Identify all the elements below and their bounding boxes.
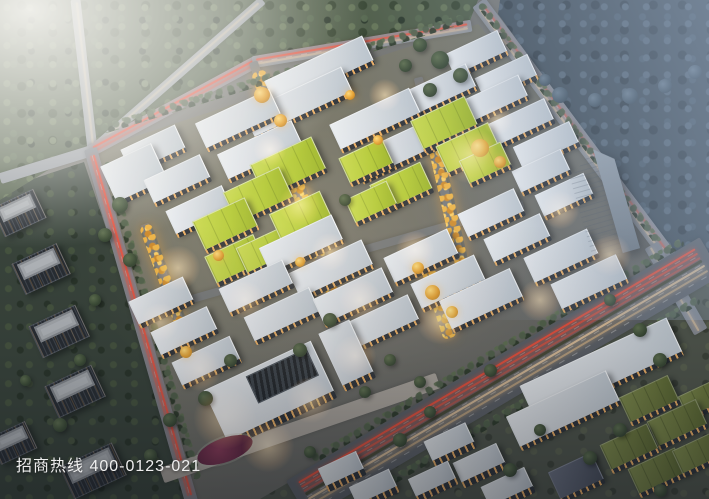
green-tree: [413, 38, 427, 52]
green-tree: [393, 433, 407, 447]
green-tree: [653, 353, 667, 367]
streetlight-glow: [541, 191, 579, 229]
green-tree: [453, 68, 468, 83]
green-tree: [583, 451, 597, 465]
streetlight-glow: [339, 279, 381, 321]
green-tree: [123, 253, 137, 267]
green-tree: [224, 354, 237, 367]
streetlight-glow: [334, 335, 376, 377]
streetlight-glow: [369, 79, 401, 111]
blue-tree: [552, 87, 568, 103]
blue-tree: [622, 88, 638, 104]
green-tree: [112, 197, 128, 213]
green-tree: [431, 51, 449, 69]
green-tree: [384, 354, 396, 366]
green-tree: [89, 294, 101, 306]
streetlight-glow: [287, 377, 333, 423]
green-tree: [534, 424, 546, 436]
gold-tree: [274, 114, 287, 127]
green-tree: [304, 446, 316, 458]
streetlight-glow: [156, 246, 200, 290]
green-tree: [604, 294, 616, 306]
streetlight-glow: [242, 420, 294, 472]
green-tree: [399, 59, 412, 72]
green-tree: [359, 386, 371, 398]
green-tree: [414, 376, 426, 388]
green-tree: [339, 194, 351, 206]
blue-tree: [588, 93, 602, 107]
gold-tree: [295, 257, 305, 267]
streetlight-glow: [279, 184, 321, 226]
green-tree: [633, 323, 647, 337]
streetlight-glow: [226, 281, 264, 319]
streetlight-glow: [416, 296, 464, 344]
streetlight-glow: [396, 231, 434, 269]
gold-tree: [345, 90, 355, 100]
green-tree: [98, 228, 112, 242]
streetlight-glow: [254, 134, 286, 166]
green-tree: [293, 343, 307, 357]
green-tree: [503, 463, 517, 477]
streetlight-glow: [483, 105, 513, 135]
streetlight-glow: [519, 279, 561, 321]
blue-tree: [658, 79, 672, 93]
aerial-park-rendering: 招商热线 400-0123-021: [0, 0, 709, 499]
streetlight-glow: [589, 234, 631, 276]
green-tree: [423, 83, 437, 97]
green-tree: [20, 375, 31, 386]
green-tree: [424, 406, 436, 418]
green-tree: [74, 354, 86, 366]
blue-tree: [688, 65, 702, 79]
green-tree: [163, 413, 177, 427]
green-tree: [53, 418, 67, 432]
green-tree: [613, 423, 627, 437]
streetlight-glow: [311, 233, 349, 271]
streetlight-glow: [141, 303, 179, 341]
green-tree: [484, 364, 497, 377]
gold-tree: [373, 135, 383, 145]
green-tree: [323, 313, 337, 327]
streetlight-glow: [179, 349, 221, 391]
tower-roof: [0, 425, 28, 452]
gold-tree: [213, 250, 224, 261]
green-tree: [654, 484, 667, 497]
blue-tree: [539, 74, 551, 86]
investment-hotline-caption: 招商热线 400-0123-021: [16, 452, 201, 476]
gold-tree: [254, 87, 270, 103]
streetlight-glow: [442, 127, 498, 183]
